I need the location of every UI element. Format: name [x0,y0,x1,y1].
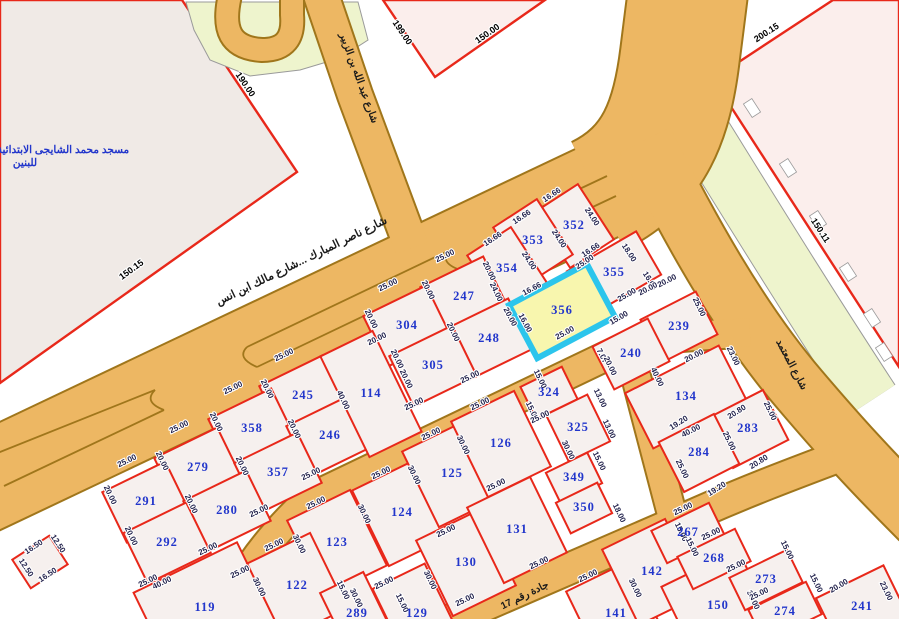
parcel-number-122: 122 [286,578,308,592]
parcel-number-350: 350 [573,500,595,514]
parcel-number-325: 325 [567,420,589,434]
parcel-number-304: 304 [396,318,418,332]
parcel-number-240: 240 [620,346,642,360]
parcel-number-241: 241 [851,599,873,613]
parcel-number-150: 150 [707,598,729,612]
parcel-number-245: 245 [292,388,314,402]
parcel-number-247: 247 [453,289,475,303]
parcel-number-125: 125 [441,466,463,480]
parcel-number-246: 246 [319,428,341,442]
map-canvas[interactable]: 25.0025.0025.0025.0025.0025.0020.0020.00… [0,0,899,619]
parcel-number-280: 280 [216,503,238,517]
parcel-number-355: 355 [603,265,625,279]
parcel-number-248: 248 [478,331,500,345]
map-viewport[interactable]: 25.0025.0025.0025.0025.0025.0020.0020.00… [0,0,899,619]
parcel-number-358: 358 [241,421,263,435]
parcel-number-124: 124 [391,505,413,519]
parcel-number-284: 284 [688,445,710,459]
parcel-number-268: 268 [703,551,725,565]
parcel-number-129: 129 [406,606,428,619]
parcel-number-239: 239 [668,319,690,333]
parcel-number-114: 114 [360,386,381,400]
parcel-number-274: 274 [774,604,796,618]
parcel-number-267: 267 [677,525,699,539]
parcel-number-356: 356 [551,303,573,317]
parcel-number-305: 305 [422,358,444,372]
parcel-number-119: 119 [194,600,215,614]
parcel-number-141: 141 [605,606,627,619]
parcel-number-289: 289 [346,606,368,619]
parcel-number-291: 291 [135,494,157,508]
parcel-number-279: 279 [187,460,209,474]
parcel-number-131: 131 [506,522,528,536]
parcel-number-349: 349 [563,470,585,484]
parcel-number-324: 324 [538,385,560,399]
parcel-number-353: 353 [522,233,544,247]
parcel-number-123: 123 [326,535,348,549]
parcel-number-283: 283 [737,421,759,435]
parcel-number-273: 273 [755,572,777,586]
parcel-number-130: 130 [455,555,477,569]
parcel-number-126: 126 [490,436,512,450]
parcel-number-354: 354 [496,261,518,275]
parcel-number-352: 352 [563,218,585,232]
parcel-number-134: 134 [675,389,697,403]
parcel-number-142: 142 [641,564,663,578]
parcel-number-357: 357 [267,465,289,479]
parcel-number-292: 292 [156,535,178,549]
